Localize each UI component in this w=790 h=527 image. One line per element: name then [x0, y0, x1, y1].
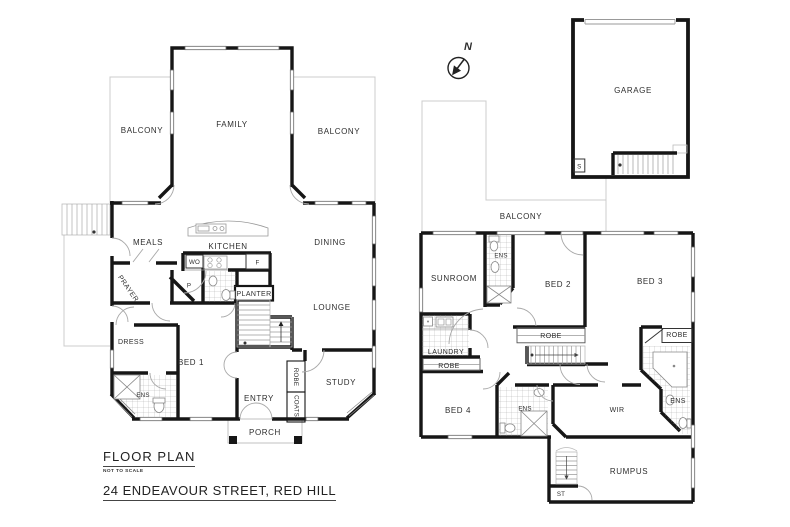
room-label-ens4: ENS [518, 406, 531, 413]
room-label-bed4: BED 4 [445, 406, 471, 415]
kitchen-island [188, 221, 268, 236]
room-label-porch: PORCH [249, 428, 281, 437]
label-robe-bed4: ROBE [438, 363, 459, 370]
ensuite3 [643, 346, 691, 434]
label-robe-bed3: ROBE [666, 332, 687, 339]
room-label-dress: DRESS [118, 339, 144, 346]
room-label-dining: DINING [314, 238, 346, 247]
label-fridge: F [256, 260, 260, 267]
room-label-rumpus: RUMPUS [610, 467, 648, 476]
room-label-ens1: ENS [136, 392, 149, 399]
property-address: 24 ENDEAVOUR STREET, RED HILL [103, 483, 336, 501]
room-label-balcony-right: BALCONY [318, 127, 360, 136]
internal-stairs-left [237, 300, 292, 347]
room-label-garage: GARAGE [614, 86, 652, 95]
ensuite2 [487, 235, 512, 303]
label-wall-oven: WO [189, 259, 200, 266]
room-label-bed2: BED 2 [545, 280, 571, 289]
plan-right-geometry [419, 17, 694, 502]
room-label-bed1: BED 1 [178, 358, 204, 367]
room-label-entry: ENTRY [244, 394, 274, 403]
room-label-ens3: ENS [670, 398, 686, 405]
room-label-wir: WIR [610, 407, 625, 414]
label-garage-store: S [577, 164, 581, 171]
plan-title: FLOOR PLAN [103, 449, 195, 467]
floor-plan-page: N BALCONY FAMILY BALCONY MEALS KITCHEN D… [0, 0, 790, 527]
label-robe-bed2: ROBE [540, 333, 561, 340]
room-label-study: STUDY [326, 378, 356, 387]
room-label-meals: MEALS [133, 238, 163, 247]
label-robe-entry: ROBE [292, 368, 299, 386]
room-label-bed3: BED 3 [637, 277, 663, 286]
label-coats: COATS [293, 395, 300, 417]
room-label-prayer: PRAYER [116, 274, 139, 303]
room-label-ens2: ENS [494, 253, 507, 260]
external-stairs [62, 204, 110, 235]
room-label-sunroom: SUNROOM [431, 274, 477, 283]
room-label-balcony-left: BALCONY [121, 126, 163, 135]
garage-structure [573, 17, 688, 177]
north-label: N [464, 41, 473, 53]
room-label-balcony-rear: BALCONY [500, 212, 542, 221]
room-label-laundry: LAUNDRY [428, 349, 464, 356]
label-stair-store: ST [557, 491, 565, 498]
compass: N [448, 41, 473, 79]
title-block: FLOOR PLAN NOT TO SCALE 24 ENDEAVOUR STR… [103, 448, 336, 501]
room-label-family: FAMILY [216, 120, 248, 129]
label-pantry: P [187, 283, 191, 290]
room-label-kitchen: KITCHEN [208, 242, 247, 251]
powder-room [205, 271, 237, 302]
room-label-lounge: LOUNGE [313, 303, 350, 312]
label-planter: PLANTER [236, 291, 271, 298]
rumpus-stairs [556, 448, 577, 485]
